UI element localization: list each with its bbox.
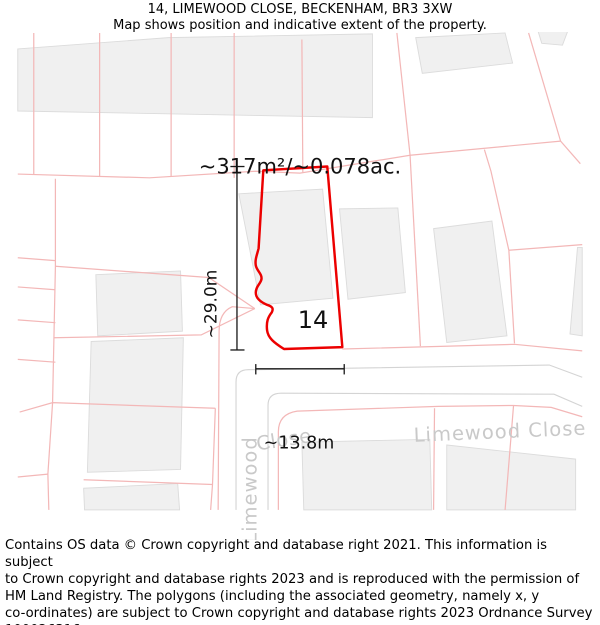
- building-west-3: [84, 484, 180, 510]
- copyright-line: HM Land Registry. The polygons (includin…: [5, 589, 597, 606]
- horizontal-dimension-label: ~13.8m: [264, 435, 335, 453]
- page-title: 14, LIMEWOOD CLOSE, BECKENHAM, BR3 3XW: [0, 2, 600, 17]
- building-south-2: [447, 445, 576, 510]
- terrace-top-band: [18, 34, 373, 118]
- vertical-dimension-label: ~29.0m: [204, 270, 221, 339]
- map-canvas: Limewood Close Limewood Close ~317m²/~0.…: [0, 32, 600, 540]
- plot-number-label: 14: [298, 308, 329, 332]
- copyright-line: Contains OS data © Crown copyright and d…: [5, 538, 597, 572]
- copyright-line: co-ordinates) are subject to Crown copyr…: [5, 606, 597, 623]
- building-east-2: [434, 221, 507, 342]
- building-right-edge-sliver: [570, 247, 582, 335]
- building-east-1: [340, 208, 406, 299]
- map-drawing: [0, 32, 600, 540]
- building-plot-14: [239, 189, 333, 305]
- building-top-right-sliver: [538, 32, 568, 45]
- page-subtitle: Map shows position and indicative extent…: [0, 18, 600, 33]
- plot-area-label: ~317m²/~0.078ac.: [199, 157, 401, 178]
- copyright-notice: Contains OS data © Crown copyright and d…: [5, 538, 597, 625]
- copyright-line: to Crown copyright and database rights 2…: [5, 572, 597, 589]
- building-west-1: [96, 271, 183, 336]
- property-map-page: 14, LIMEWOOD CLOSE, BECKENHAM, BR3 3XW M…: [0, 0, 600, 625]
- building-top-center: [416, 33, 513, 73]
